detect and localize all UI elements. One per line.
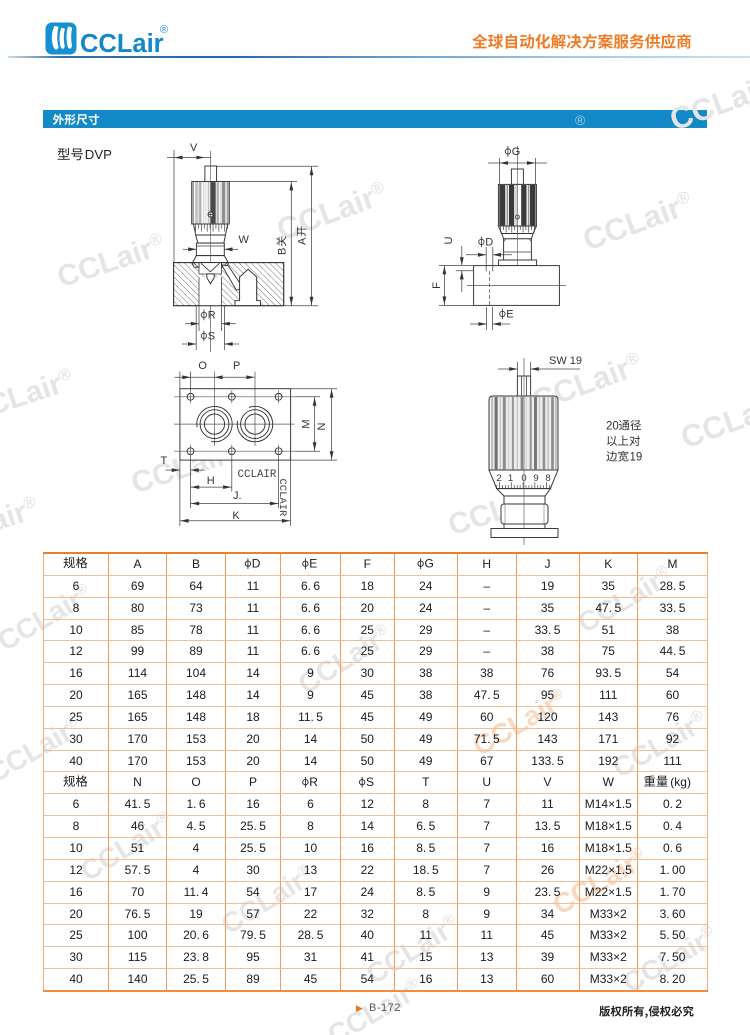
svg-text:(kg): (kg) bbox=[670, 775, 691, 789]
svg-text:G: G bbox=[425, 556, 434, 570]
svg-text:DVP: DVP bbox=[85, 147, 112, 162]
svg-text:S: S bbox=[366, 775, 374, 789]
svg-text:®: ® bbox=[575, 112, 586, 128]
svg-text:D: D bbox=[252, 556, 261, 570]
svg-text:E: E bbox=[309, 556, 317, 570]
svg-text:R: R bbox=[309, 775, 318, 789]
